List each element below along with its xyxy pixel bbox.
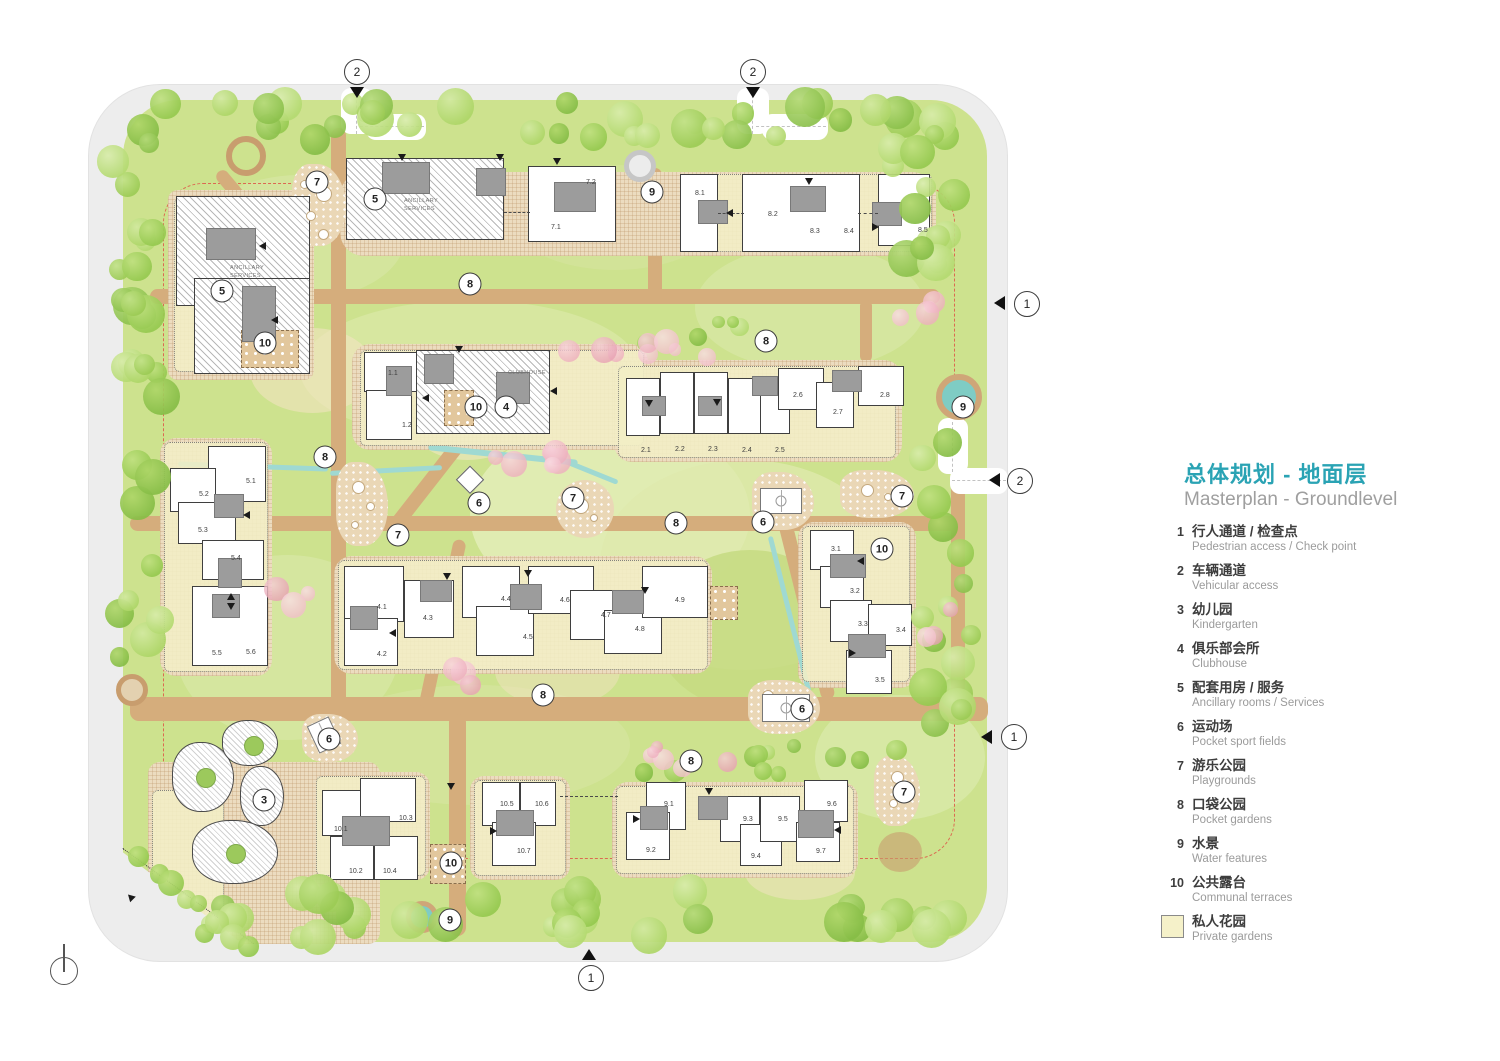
access-arrow-icon [259, 242, 266, 250]
legend-item-zh: 游乐公园 [1192, 758, 1496, 774]
roof-volume [554, 182, 596, 212]
legend-item: 4俱乐部会所Clubhouse [1156, 641, 1496, 672]
legend-item-zh: 公共露台 [1192, 875, 1496, 891]
legend-item-en: Playgrounds [1192, 774, 1496, 789]
plan-marker-7: 7 [893, 781, 916, 804]
access-arrow-icon [553, 158, 561, 165]
access-arrow-icon [271, 316, 278, 324]
access-arrow-icon [524, 570, 532, 577]
access-arrow-icon [633, 815, 640, 823]
path [860, 300, 872, 362]
tree [865, 910, 897, 942]
tree [860, 94, 891, 125]
plan-marker-8: 8 [680, 750, 703, 773]
tree [556, 92, 578, 114]
plan-marker-5: 5 [364, 188, 387, 211]
roof-volume [342, 816, 390, 846]
legend-item-number: 1 [1156, 524, 1184, 555]
legend-items: 1行人通道 / 检查点Pedestrian access / Check poi… [1156, 524, 1496, 953]
blossom-tree [591, 337, 617, 363]
roof-volume [510, 584, 542, 610]
tree [139, 133, 159, 153]
tree [938, 179, 970, 211]
tree [549, 123, 570, 144]
legend-item-zh: 车辆通道 [1192, 563, 1496, 579]
access-arrow-icon [834, 826, 841, 834]
tree [465, 882, 500, 917]
tree [299, 874, 339, 914]
roof-volume [214, 494, 244, 518]
tree [580, 123, 608, 151]
plan-marker-8: 8 [314, 446, 337, 469]
tree [631, 917, 667, 953]
play-circle [366, 502, 375, 511]
legend-item-zh: 俱乐部会所 [1192, 641, 1496, 657]
legend-item-text: 行人通道 / 检查点Pedestrian access / Check poin… [1192, 524, 1496, 555]
plan-marker-8: 8 [755, 330, 778, 353]
plan-marker-4: 4 [495, 396, 518, 419]
roof-volume [212, 594, 240, 618]
legend-item: 5配套用房 / 服务Ancillary rooms / Services [1156, 680, 1496, 711]
play-circle [318, 229, 329, 240]
roundabout [116, 674, 148, 706]
kindergarten-courtyard [226, 844, 246, 864]
entrance-marker-2: 2 [1007, 468, 1033, 494]
plan-marker-7: 7 [387, 524, 410, 547]
access-arrow-icon [713, 399, 721, 406]
tree [912, 909, 951, 948]
legend-item-text: 私人花园Private gardens [1192, 914, 1496, 945]
tree [829, 108, 852, 131]
building [642, 566, 708, 618]
roof-volume [218, 558, 242, 588]
legend-item-text: 游乐公园Playgrounds [1192, 758, 1496, 789]
plan-marker-10: 10 [465, 396, 488, 419]
tree [554, 915, 587, 948]
road-centerline [756, 126, 826, 127]
entrance-marker-2: 2 [344, 59, 370, 85]
roof-volume [382, 162, 430, 194]
legend-item-number: 6 [1156, 719, 1184, 750]
entrance-marker-1: 1 [1014, 291, 1040, 317]
plan-marker-7: 7 [891, 485, 914, 508]
tree [851, 751, 868, 768]
plan-marker-6: 6 [318, 728, 341, 751]
roof-volume [612, 590, 644, 614]
plan-marker-10: 10 [254, 332, 277, 355]
tree [635, 763, 653, 781]
tree [900, 135, 935, 170]
access-arrow-icon [227, 603, 235, 610]
access-arrow-icon [496, 154, 504, 161]
link-line [858, 213, 878, 214]
tree [951, 699, 972, 720]
legend-item-text: 水景Water features [1192, 836, 1496, 867]
tree [824, 902, 864, 942]
blossom-tree [501, 451, 527, 477]
tree [727, 316, 739, 328]
access-arrow-icon [872, 223, 879, 231]
roof-volume [832, 370, 862, 392]
plan-marker-9: 9 [952, 396, 975, 419]
tree [722, 120, 751, 149]
plan-marker-6: 6 [468, 492, 491, 515]
blossom-tree [718, 752, 738, 772]
legend-item-number: 8 [1156, 797, 1184, 828]
legend-item: 9水景Water features [1156, 836, 1496, 867]
tree [139, 219, 166, 246]
tree [143, 378, 180, 415]
access-arrow-icon [227, 593, 235, 600]
play-circle [352, 481, 365, 494]
plan-marker-8: 8 [459, 273, 482, 296]
site-plan-drawing: ANCILLARY SERVICESANCILLARY SERVICESCLUB… [0, 0, 1100, 1061]
legend-item-zh: 运动场 [1192, 719, 1496, 735]
access-arrow-icon [645, 400, 653, 407]
access-arrow-icon [455, 346, 463, 353]
legend-item-zh: 私人花园 [1192, 914, 1496, 930]
blossom-tree [281, 592, 306, 617]
legend-item-en: Ancillary rooms / Services [1192, 696, 1496, 711]
entrance-marker-2: 2 [740, 59, 766, 85]
plan-marker-7: 7 [562, 487, 585, 510]
access-arrow-icon [447, 783, 455, 790]
access-arrow-icon [705, 788, 713, 795]
corner-plaza [878, 832, 922, 872]
legend-item: 私人花园Private gardens [1156, 914, 1496, 945]
blossom-tree [916, 301, 939, 324]
legend-item-text: 运动场Pocket sport fields [1192, 719, 1496, 750]
communal-terrace [710, 586, 738, 620]
legend-item-number: 5 [1156, 680, 1184, 711]
roof-volume [640, 806, 668, 830]
tree [135, 459, 171, 495]
tree [238, 936, 258, 956]
blossom-tree [654, 329, 679, 354]
link-line [560, 796, 618, 797]
legend-item-en: Vehicular access [1192, 579, 1496, 594]
legend-swatch-private-gardens [1161, 915, 1184, 938]
tree [121, 291, 146, 316]
access-arrow-icon [422, 394, 429, 402]
roof-volume [496, 810, 534, 836]
play-circle [590, 514, 598, 522]
entrance-arrow-icon [989, 473, 1000, 487]
legend-item-en: Water features [1192, 852, 1496, 867]
roof-volume [698, 200, 728, 224]
legend: 总体规划 - 地面层 Masterplan - Groundlevel 1行人通… [1156, 463, 1496, 511]
tree [909, 445, 935, 471]
tree [110, 647, 130, 667]
tree [437, 88, 474, 125]
access-arrow-icon [550, 387, 557, 395]
tree [128, 846, 149, 867]
plan-marker-6: 6 [752, 511, 775, 534]
legend-item-zh: 行人通道 / 检查点 [1192, 524, 1496, 540]
plan-marker-8: 8 [665, 512, 688, 535]
legend-item-number: 9 [1156, 836, 1184, 867]
plan-marker-7: 7 [306, 171, 329, 194]
access-arrow-icon [805, 178, 813, 185]
tree [886, 740, 906, 760]
roof-volume [206, 228, 256, 260]
legend-item: 8口袋公园Pocket gardens [1156, 797, 1496, 828]
legend-item-zh: 水景 [1192, 836, 1496, 852]
legend-item-number: 7 [1156, 758, 1184, 789]
roundabout [226, 136, 266, 176]
tree [141, 554, 163, 576]
tree [917, 485, 951, 519]
playground [336, 462, 388, 546]
legend-item-en: Pocket gardens [1192, 813, 1496, 828]
legend-item: 6运动场Pocket sport fields [1156, 719, 1496, 750]
legend-item-zh: 幼儿园 [1192, 602, 1496, 618]
tree [766, 126, 786, 146]
tree [749, 745, 768, 764]
link-line [504, 212, 530, 213]
path [130, 697, 988, 721]
roof-volume [350, 606, 378, 630]
access-arrow-icon [243, 511, 250, 519]
legend-item-number: 2 [1156, 563, 1184, 594]
legend-title-zh: 总体规划 - 地面层 [1184, 463, 1496, 487]
tree [785, 87, 824, 126]
north-arrow-icon [63, 944, 65, 972]
tree [899, 193, 930, 224]
play-circle [306, 211, 316, 221]
legend-item-zh: 口袋公园 [1192, 797, 1496, 813]
tree [97, 145, 129, 177]
entrance-arrow-icon [994, 296, 1005, 310]
legend-item-en: Pedestrian access / Check point [1192, 540, 1496, 555]
entrance-arrow-icon [350, 87, 364, 98]
plan-marker-10: 10 [871, 538, 894, 561]
legend-item-text: 车辆通道Vehicular access [1192, 563, 1496, 594]
legend-item-text: 幼儿园Kindergarten [1192, 602, 1496, 633]
tree [673, 874, 707, 908]
blossom-tree [460, 675, 480, 695]
tree [787, 739, 801, 753]
plan-marker-10: 10 [440, 852, 463, 875]
access-arrow-icon [849, 649, 856, 657]
roof-volume [752, 376, 778, 396]
kindergarten-courtyard [244, 736, 264, 756]
legend-item-text: 俱乐部会所Clubhouse [1192, 641, 1496, 672]
building [858, 366, 904, 406]
roof-volume [698, 796, 728, 820]
access-arrow-icon [443, 573, 451, 580]
tree [933, 428, 962, 457]
legend-item-zh: 配套用房 / 服务 [1192, 680, 1496, 696]
entrance-marker-1: 1 [578, 965, 604, 991]
roof-volume [476, 168, 506, 196]
roof-volume [798, 810, 834, 838]
path [449, 714, 466, 936]
tree [954, 574, 973, 593]
tree [300, 919, 336, 955]
access-arrow-icon [389, 629, 396, 637]
building [476, 606, 534, 656]
legend-item-text: 公共露台Communal terraces [1192, 875, 1496, 906]
legend-item-number: 4 [1156, 641, 1184, 672]
masterplan-page: ANCILLARY SERVICESANCILLARY SERVICESCLUB… [0, 0, 1500, 1061]
roof-volume [420, 580, 452, 602]
legend-item-en: Communal terraces [1192, 891, 1496, 906]
plan-marker-8: 8 [532, 684, 555, 707]
entrance-arrow-icon [582, 949, 596, 960]
plan-marker-3: 3 [253, 789, 276, 812]
plan-marker-5: 5 [211, 280, 234, 303]
blossom-tree [544, 457, 560, 473]
entrance-marker-1: 1 [1001, 724, 1027, 750]
tree [118, 590, 139, 611]
legend-item-en: Clubhouse [1192, 657, 1496, 672]
legend-item: 1行人通道 / 检查点Pedestrian access / Check poi… [1156, 524, 1496, 555]
tree [941, 646, 975, 680]
tree [253, 93, 283, 123]
legend-item-en: Pocket sport fields [1192, 735, 1496, 750]
tree [190, 895, 207, 912]
blossom-tree [917, 627, 937, 647]
access-arrow-icon [641, 587, 649, 594]
legend-title-en: Masterplan - Groundlevel [1184, 489, 1496, 511]
tree [391, 901, 429, 939]
access-arrow-icon [857, 557, 864, 565]
plan-marker-6: 6 [791, 698, 814, 721]
blossom-tree [647, 746, 659, 758]
legend-item-text: 口袋公园Pocket gardens [1192, 797, 1496, 828]
play-circle [861, 484, 874, 497]
legend-item-text: 配套用房 / 服务Ancillary rooms / Services [1192, 680, 1496, 711]
tree [825, 747, 845, 767]
access-arrow-icon [490, 827, 497, 835]
kindergarten-courtyard [196, 768, 216, 788]
entrance-arrow-icon [746, 87, 760, 98]
water-pond [624, 150, 656, 182]
legend-item: 10公共露台Communal terraces [1156, 875, 1496, 906]
legend-item: 3幼儿园Kindergarten [1156, 602, 1496, 633]
legend-item-en: Kindergarten [1192, 618, 1496, 633]
entrance-arrow-icon [981, 730, 992, 744]
legend-item-en: Private gardens [1192, 930, 1496, 945]
tree [771, 766, 787, 782]
tree [947, 539, 975, 567]
blossom-tree [558, 340, 580, 362]
legend-item: 2车辆通道Vehicular access [1156, 563, 1496, 594]
legend-item-number: 10 [1156, 875, 1184, 906]
tree [212, 90, 238, 116]
blossom-tree [698, 348, 716, 366]
legend-item-number: 3 [1156, 602, 1184, 633]
tree [702, 117, 725, 140]
tree [300, 124, 331, 155]
roof-volume [424, 354, 454, 384]
play-circle [351, 521, 359, 529]
access-arrow-icon [398, 154, 406, 161]
plan-marker-9: 9 [641, 181, 664, 204]
blossom-tree [892, 309, 909, 326]
access-arrow-icon [726, 209, 733, 217]
building [366, 390, 412, 440]
legend-item: 7游乐公园Playgrounds [1156, 758, 1496, 789]
roof-volume [790, 186, 826, 212]
tree [134, 354, 155, 375]
plan-marker-9: 9 [439, 909, 462, 932]
tree [150, 89, 180, 119]
